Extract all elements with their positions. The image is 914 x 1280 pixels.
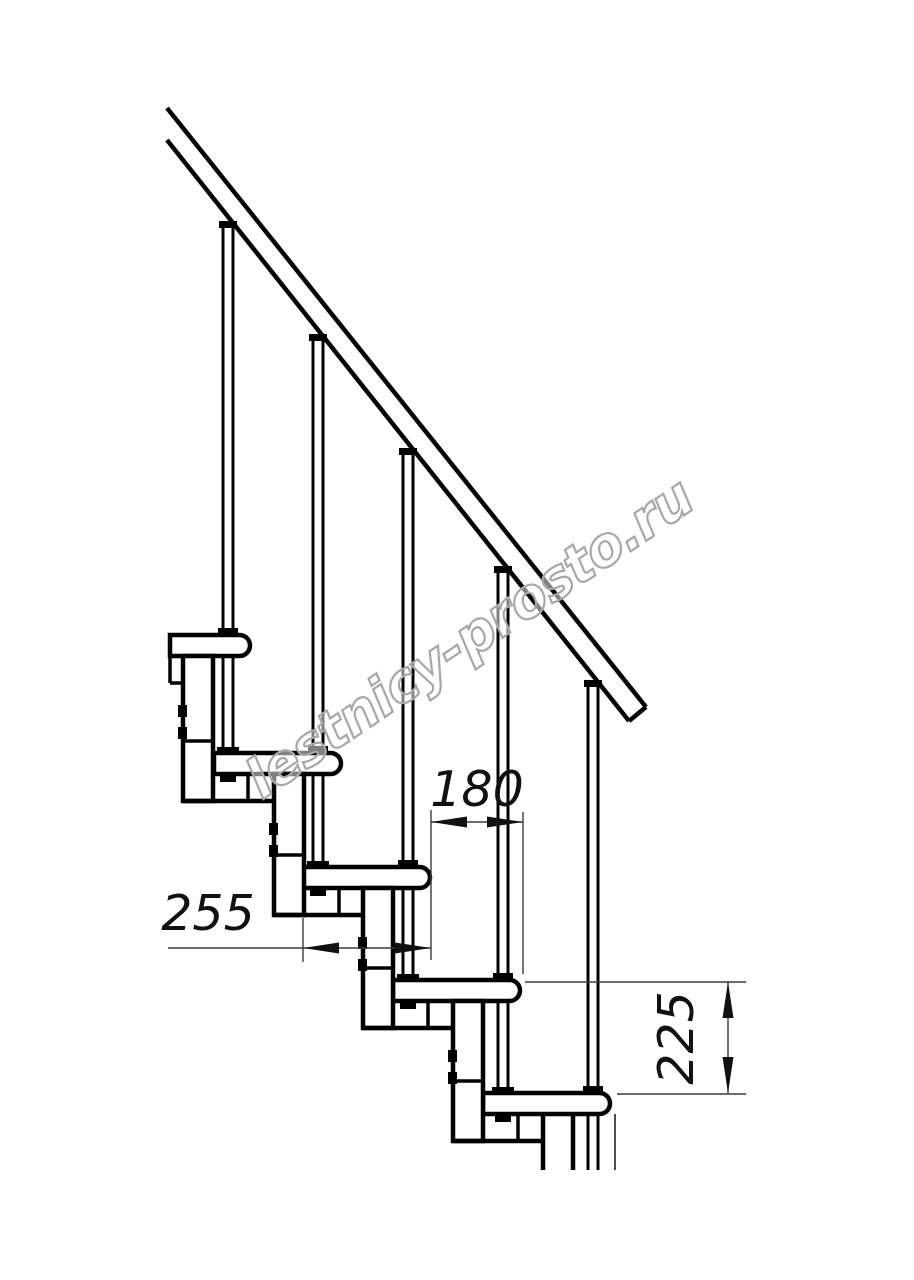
tread-board [483, 1093, 610, 1114]
module-bolt [178, 705, 187, 717]
drawing-canvas: 180255225lestnicy-prosto.ru [0, 0, 914, 1280]
dimension-arrow [431, 817, 467, 828]
tread-board [393, 980, 520, 1001]
dimension-label-step-run: 180 [430, 761, 524, 818]
baluster-collar [583, 1086, 603, 1093]
dimension-arrow [303, 943, 339, 954]
dimension-arrow [487, 817, 523, 828]
tread-board [170, 635, 250, 656]
module-box [183, 656, 213, 801]
baluster-nut [400, 1002, 416, 1009]
support-module-5 [543, 1114, 573, 1170]
baluster-rail-connector [584, 680, 602, 687]
tread-1 [170, 635, 250, 656]
baluster-collar [218, 628, 238, 635]
dimension-label-riser-height: 225 [648, 991, 705, 1085]
baluster-collar [493, 973, 513, 980]
module-bolt [358, 959, 367, 971]
module-box [453, 1001, 483, 1141]
tread-3 [303, 867, 430, 888]
baluster-foot [397, 974, 419, 980]
module-box [363, 888, 393, 1028]
baluster-rail-connector [399, 448, 417, 455]
baluster-1 [219, 221, 237, 753]
baluster-rail-connector [219, 221, 237, 228]
module-bolt [448, 1072, 457, 1084]
dimension-step-run: 180 [430, 761, 524, 974]
handrail [167, 108, 646, 721]
staircase-technical-drawing: 180255225lestnicy-prosto.ru [0, 0, 914, 1280]
dimension-label-tread-depth: 255 [161, 885, 255, 942]
module-bolt [178, 727, 187, 739]
baluster-nut [220, 775, 236, 782]
baluster-nut [310, 889, 326, 896]
module-bolt [269, 823, 278, 835]
dimension-riser-height: 225 [525, 982, 746, 1094]
baluster-nut [495, 1115, 511, 1122]
dimension-arrow [723, 1057, 734, 1093]
baluster-foot [492, 1087, 514, 1093]
baluster-foot [307, 861, 329, 867]
baluster-foot [217, 747, 239, 753]
baluster-rail-connector [309, 334, 327, 341]
baluster-2 [309, 334, 327, 867]
module-bolt [358, 937, 367, 949]
baluster-collar [398, 860, 418, 867]
module-bolt [448, 1050, 457, 1062]
tread-board [303, 867, 430, 888]
dimension-arrow [723, 982, 734, 1018]
tread-5 [483, 1093, 610, 1114]
module-bolt [269, 845, 278, 857]
tread-4 [393, 980, 520, 1001]
